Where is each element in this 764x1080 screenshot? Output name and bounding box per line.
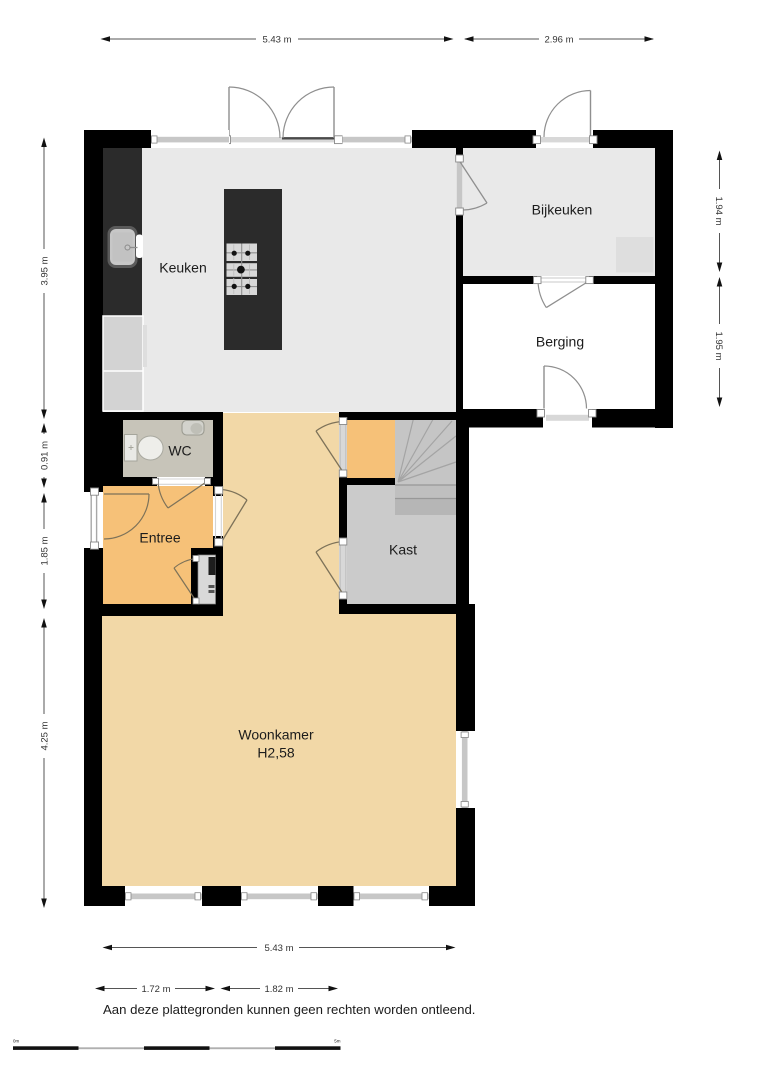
svg-text:5m: 5m xyxy=(334,1039,341,1044)
svg-text:WC: WC xyxy=(168,443,191,459)
svg-text:Bijkeuken: Bijkeuken xyxy=(532,202,593,218)
svg-text:Entree: Entree xyxy=(139,530,180,546)
svg-text:1.94 m: 1.94 m xyxy=(713,196,724,225)
svg-text:3.95 m: 3.95 m xyxy=(40,256,51,285)
svg-text:4.25 m: 4.25 m xyxy=(40,721,51,750)
svg-text:Woonkamer: Woonkamer xyxy=(238,727,314,743)
svg-text:1.85 m: 1.85 m xyxy=(40,536,51,565)
svg-text:0.91 m: 0.91 m xyxy=(40,441,51,470)
svg-text:1.72 m: 1.72 m xyxy=(141,984,170,995)
svg-text:5.43 m: 5.43 m xyxy=(264,943,293,954)
svg-text:0m: 0m xyxy=(13,1039,20,1044)
svg-text:Keuken: Keuken xyxy=(159,260,206,276)
svg-text:Berging: Berging xyxy=(536,334,584,350)
svg-text:2.96 m: 2.96 m xyxy=(544,35,573,46)
svg-text:Kast: Kast xyxy=(389,542,417,558)
svg-text:H2,58: H2,58 xyxy=(257,745,295,761)
svg-text:5.43 m: 5.43 m xyxy=(262,35,291,46)
svg-text:1.95 m: 1.95 m xyxy=(713,331,724,360)
svg-text:Aan deze plattegronden kunnen: Aan deze plattegronden kunnen geen recht… xyxy=(103,1002,475,1017)
svg-text:1.82 m: 1.82 m xyxy=(264,984,293,995)
